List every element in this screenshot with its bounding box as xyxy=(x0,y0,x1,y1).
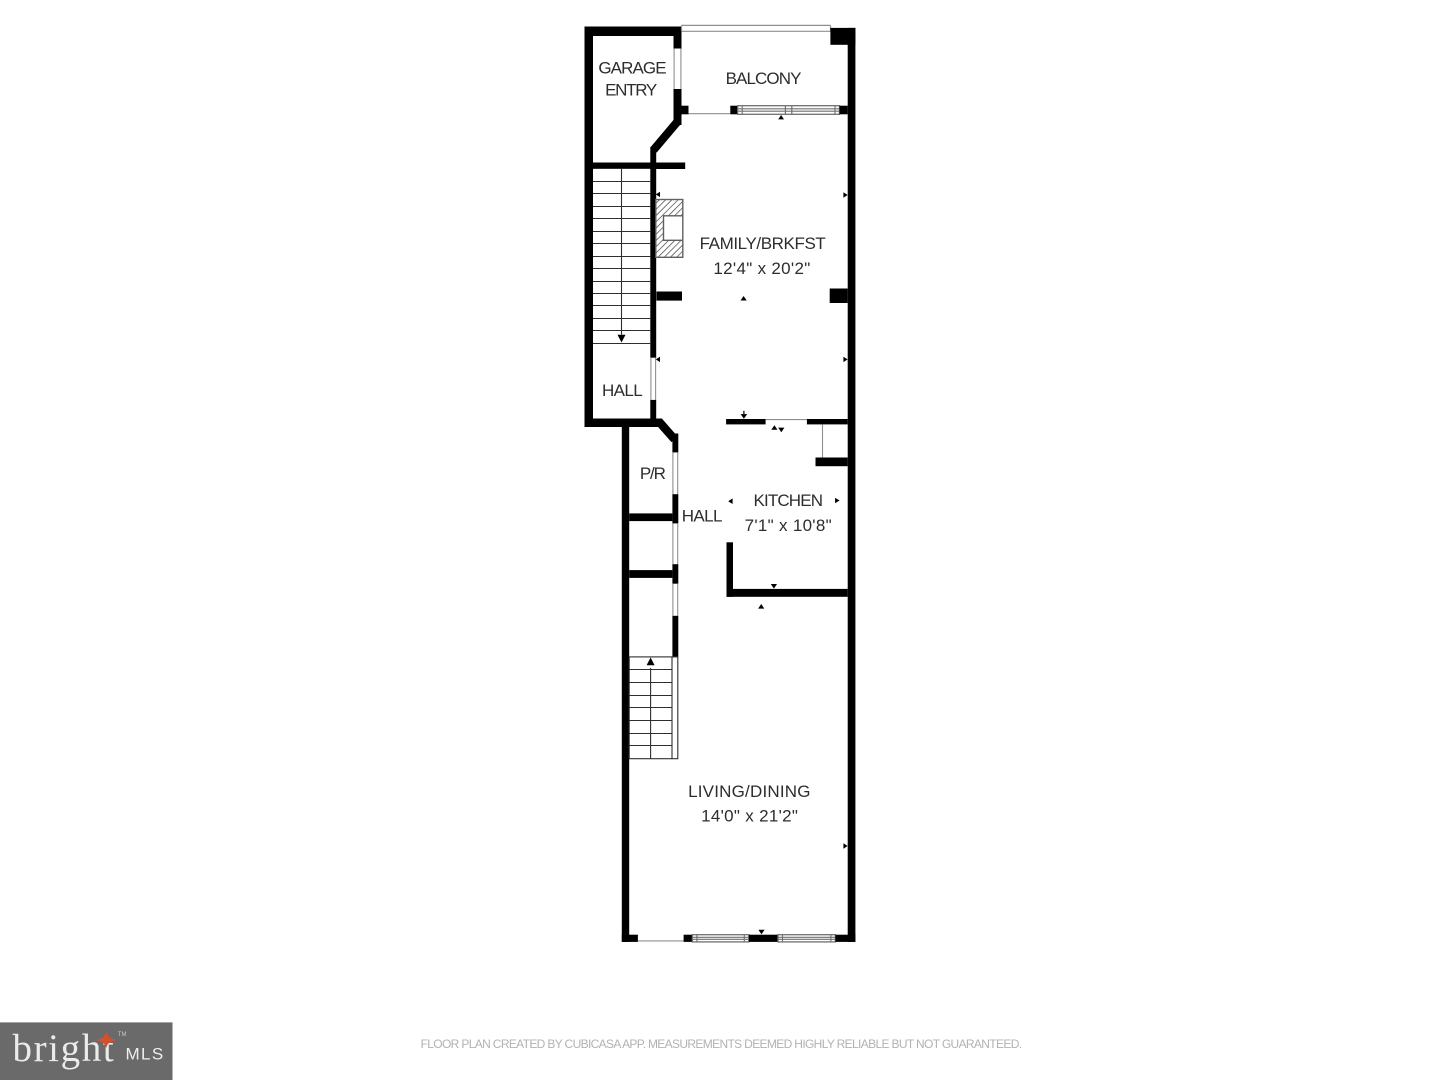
svg-text:HALL: HALL xyxy=(682,507,722,526)
svg-text:12'4" x 20'2": 12'4" x 20'2" xyxy=(713,259,810,278)
svg-text:bright: bright xyxy=(13,1027,116,1070)
svg-text:P/R: P/R xyxy=(640,464,666,483)
svg-text:7'1" x 10'8": 7'1" x 10'8" xyxy=(745,516,832,535)
svg-text:FLOOR PLAN CREATED BY CUBICASA: FLOOR PLAN CREATED BY CUBICASA APP. MEAS… xyxy=(421,1037,1022,1051)
svg-text:14'0" x 21'2": 14'0" x 21'2" xyxy=(701,807,798,826)
svg-text:HALL: HALL xyxy=(602,381,642,400)
svg-text:GARAGE: GARAGE xyxy=(598,59,666,78)
svg-text:BALCONY: BALCONY xyxy=(726,69,802,88)
svg-text:MLS: MLS xyxy=(126,1045,165,1064)
svg-text:TM: TM xyxy=(118,1032,127,1038)
svg-text:FAMILY/BRKFST: FAMILY/BRKFST xyxy=(700,234,826,253)
svg-text:KITCHEN: KITCHEN xyxy=(753,491,822,510)
svg-text:LIVING/DINING: LIVING/DINING xyxy=(688,782,811,801)
svg-text:ENTRY: ENTRY xyxy=(605,81,657,100)
